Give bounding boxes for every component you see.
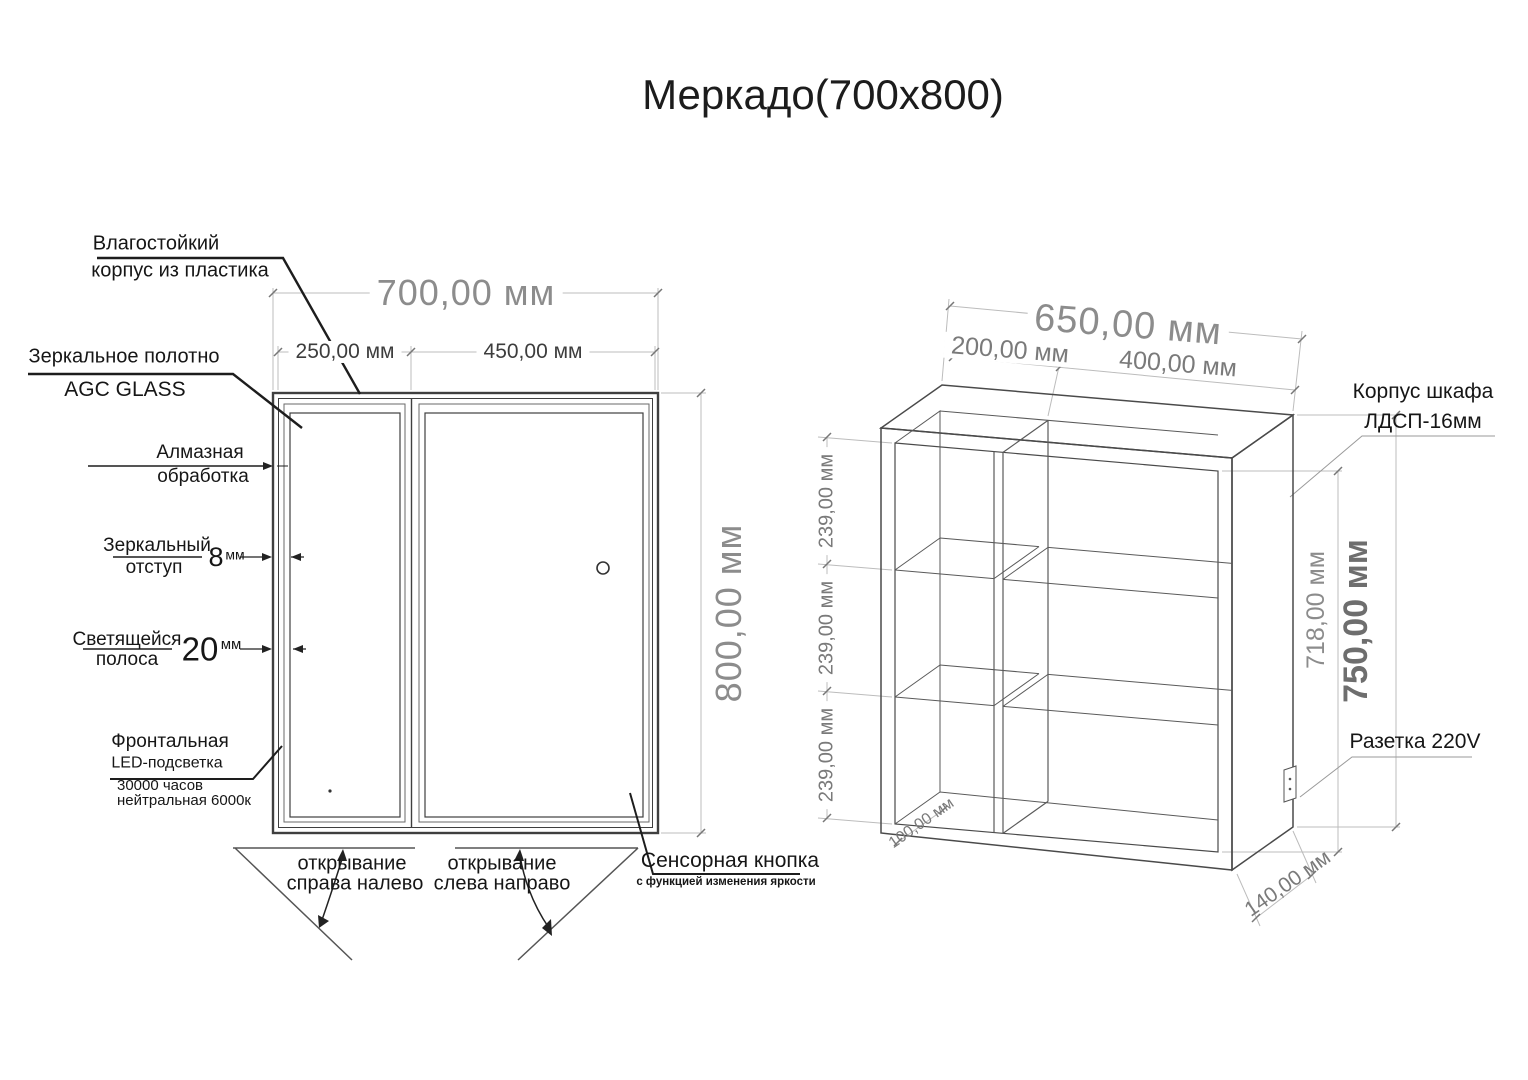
dim-outer-height: 750,00 мм xyxy=(1339,532,1375,710)
glow-strip-value: 20 xyxy=(182,633,219,668)
label-socket: Разетка 220V xyxy=(1350,731,1481,753)
mirror-offset-value: 8 xyxy=(208,543,223,571)
label-led-line2: LED-подсветка xyxy=(111,756,222,773)
label-mirror-offset-line2: отступ xyxy=(126,558,183,578)
label-open-left-line1: открывание xyxy=(298,854,407,875)
label-mirror-offset-line1: Зеркальный xyxy=(103,536,211,556)
label-diamond-edge-line1: Алмазная xyxy=(156,443,243,463)
label-waterproof-body-line2: корпус из пластика xyxy=(91,261,269,282)
dim-width-left: 250,00 мм xyxy=(289,341,402,363)
label-glow-strip-line2: полоса xyxy=(96,650,158,670)
socket-mark xyxy=(1284,766,1296,802)
technical-drawing-page: Меркадо(700х800) 700,00 мм 250,00 мм 450… xyxy=(0,0,1528,1080)
label-mirror-sheet-line1: Зеркальное полотно xyxy=(29,347,220,368)
mirror-offset-unit: мм xyxy=(225,548,244,563)
dim-shelf-spacing-1: 239,00 мм xyxy=(817,447,838,555)
label-cabinet-body-line2: ЛДСП-16мм xyxy=(1364,411,1482,433)
label-led-line1: Фронтальная xyxy=(111,732,228,752)
page-title: Меркадо(700х800) xyxy=(642,73,1004,117)
drawing-linework xyxy=(0,0,1528,1080)
label-diamond-edge-line2: обработка xyxy=(157,467,249,487)
label-open-left-line2: справа налево xyxy=(287,874,424,895)
label-mirror-sheet-line2: AGC GLASS xyxy=(64,379,185,401)
label-sensor-line1: Сенсорная кнопка xyxy=(641,850,819,872)
dim-height: 800,00 мм xyxy=(710,517,748,710)
dim-shelf-spacing-2: 239,00 мм xyxy=(817,574,838,682)
door-swing-marks xyxy=(233,848,638,960)
label-sensor-line2: с функцией изменения яркости xyxy=(636,876,815,888)
glow-strip-unit: мм xyxy=(221,637,242,653)
dim-inner-height: 718,00 мм xyxy=(1303,544,1329,676)
dim-width-total: 700,00 мм xyxy=(370,274,563,312)
dim-shelf-spacing-3: 239,00 мм xyxy=(817,701,838,809)
label-cabinet-body-line1: Корпус шкафа xyxy=(1353,381,1494,403)
label-led-line4: нейтральная 6000к xyxy=(117,793,251,809)
label-open-right-line1: открывание xyxy=(448,854,557,875)
sensor-button-mark xyxy=(597,562,609,574)
dim-width-right: 450,00 мм xyxy=(477,341,590,363)
label-waterproof-body-line1: Влагостойкий xyxy=(93,234,219,255)
label-open-right-line2: слева направо xyxy=(434,874,571,895)
label-glow-strip-line1: Светящейся xyxy=(73,630,182,650)
